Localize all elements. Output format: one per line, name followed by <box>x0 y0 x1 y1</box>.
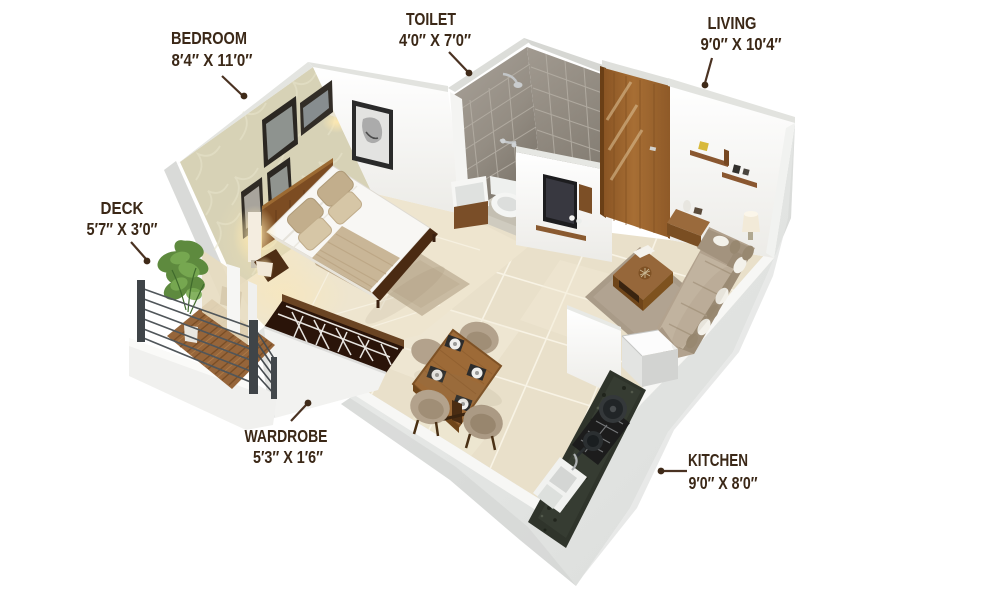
svg-text:5′7″ X 3′0″: 5′7″ X 3′0″ <box>87 219 159 239</box>
svg-text:5′3″ X 1′6″: 5′3″ X 1′6″ <box>253 447 324 467</box>
svg-text:TOILET: TOILET <box>406 9 456 29</box>
svg-text:9′0″ X 10′4″: 9′0″ X 10′4″ <box>701 34 783 54</box>
svg-text:LIVING: LIVING <box>708 13 757 33</box>
svg-text:DECK: DECK <box>101 198 144 218</box>
svg-text:WARDROBE: WARDROBE <box>245 426 328 446</box>
svg-text:4′0″ X 7′0″: 4′0″ X 7′0″ <box>399 30 472 50</box>
svg-text:KITCHEN: KITCHEN <box>688 450 748 470</box>
svg-text:BEDROOM: BEDROOM <box>171 28 247 48</box>
svg-text:8′4″ X 11′0″: 8′4″ X 11′0″ <box>172 50 254 70</box>
svg-text:9′0″ X 8′0″: 9′0″ X 8′0″ <box>689 473 758 493</box>
